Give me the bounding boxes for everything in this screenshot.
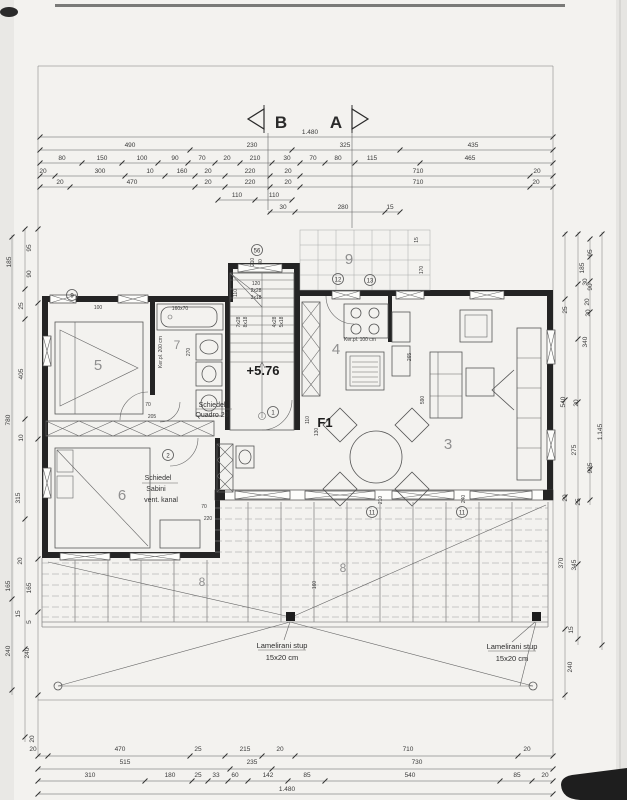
marker: 12 xyxy=(335,278,342,284)
dim: 15 xyxy=(15,610,22,618)
dim: 20 xyxy=(223,155,231,162)
dim: 465 xyxy=(465,155,476,162)
dim: 165 xyxy=(26,582,33,593)
note-sabini-3: vent. kanal xyxy=(144,497,178,504)
dim: 470 xyxy=(115,746,126,753)
dim: 935 xyxy=(587,462,594,473)
dimension-labels-top: 1.480 490 230 325 435 80 150 100 90 70 2… xyxy=(39,129,541,211)
dim: 70 xyxy=(145,402,151,408)
dim: 30 xyxy=(283,155,291,162)
scan-artifacts xyxy=(0,0,627,800)
dim: 20 xyxy=(585,309,592,317)
room-label-8b: 8 xyxy=(340,561,347,575)
dim: 60 xyxy=(231,772,239,779)
floorplan-drawing: 1.480 490 230 325 435 80 150 100 90 70 2… xyxy=(0,0,627,800)
stair-dim: 210 xyxy=(250,258,256,267)
dimension-labels-bottom: 20 470 25 215 20 710 20 515 235 730 310 … xyxy=(29,746,549,793)
dim: 240 xyxy=(5,645,12,656)
dim: 20 xyxy=(573,399,580,407)
dim: 15 xyxy=(568,626,575,634)
section-markers: B A xyxy=(248,105,368,228)
note-sabini-1: Schiedel xyxy=(145,475,172,482)
dim: 515 xyxy=(120,759,131,766)
dim: 265 xyxy=(407,353,413,362)
stove-icon xyxy=(344,304,388,338)
dim: 20 xyxy=(532,179,540,186)
stair-dim: 120 xyxy=(252,281,261,287)
dim: 20 xyxy=(541,772,549,779)
dim: 710 xyxy=(403,746,414,753)
marker: 13 xyxy=(367,279,374,285)
bottom-right-scan-corner xyxy=(561,768,627,800)
dim-overall-bottom: 1.480 xyxy=(279,786,296,793)
coffee-table-icon xyxy=(466,368,494,396)
stair-riser: 4x28 xyxy=(272,316,278,327)
stair-riser: 5x18 xyxy=(279,316,285,327)
dim: 20 xyxy=(204,179,212,186)
annotations: +5.76 F1 Schiedel Quadro 20 Schiedel Sab… xyxy=(142,306,537,663)
dimension-chain-lines xyxy=(10,135,605,797)
dim: 220 xyxy=(245,179,256,186)
dim: 110 xyxy=(232,192,243,199)
section-letter-a: A xyxy=(330,113,342,132)
zone-label: F1 xyxy=(317,415,332,430)
dim: 310 xyxy=(85,772,96,779)
dim: 160 xyxy=(312,581,318,590)
fridge-icon xyxy=(346,352,384,390)
dim: 85 xyxy=(513,772,521,779)
top-left-scan-blob xyxy=(0,7,18,17)
dim: 405 xyxy=(18,368,25,379)
dim: 115 xyxy=(367,155,378,162)
kitchen-cabinet-icon xyxy=(392,312,410,376)
room-label-7: 7 xyxy=(174,338,181,352)
dim: 185 xyxy=(579,262,586,273)
dim: 325 xyxy=(340,142,351,149)
room-label-9: 9 xyxy=(345,251,353,268)
dim: 210 xyxy=(250,155,261,162)
dim: 90 xyxy=(26,270,33,278)
room-label-3: 3 xyxy=(444,436,452,453)
dim: 345 xyxy=(571,559,578,570)
dim: 20 xyxy=(39,168,47,175)
balcony-grid xyxy=(300,230,430,290)
note-column-left-1: Lamelirani stup xyxy=(257,641,308,650)
section-letter-b: B xyxy=(275,113,287,132)
dim: 1.145 xyxy=(597,423,604,440)
dim: 490 xyxy=(125,142,136,149)
dim: 780 xyxy=(5,414,12,425)
level-label: +5.76 xyxy=(247,363,280,378)
note-tub-size: 160x70 xyxy=(172,306,189,312)
stair-dim: 110 xyxy=(233,289,239,297)
dim: 710 xyxy=(413,179,424,186)
dim: 70 xyxy=(198,155,206,162)
shelf-icon xyxy=(517,328,541,480)
stairs: 120 2x28 3x18 7x28 8x18 4x28 5x18 110 21… xyxy=(230,258,294,430)
dim: 15 xyxy=(386,204,394,211)
room-label-5: 5 xyxy=(94,357,102,374)
room-label-4: 4 xyxy=(332,341,340,358)
dim: 20 xyxy=(284,168,292,175)
scanned-floorplan-page: 1.480 490 230 325 435 80 150 100 90 70 2… xyxy=(0,0,627,800)
dim: 30 xyxy=(279,204,287,211)
dim: 25 xyxy=(575,498,582,506)
sofa-icon xyxy=(430,352,462,418)
dim: 25 xyxy=(562,306,569,314)
dim: 5 xyxy=(26,620,33,624)
stair-riser: 7x28 xyxy=(236,316,242,327)
note-column-left-2: 15x20 cm xyxy=(266,653,299,662)
column-right xyxy=(532,612,541,621)
dim: 275 xyxy=(571,444,578,455)
section-arrow-right-icon xyxy=(352,109,368,129)
dim: 20 xyxy=(284,179,292,186)
dim: 33 xyxy=(212,772,220,779)
marker: 11 xyxy=(369,511,376,517)
dim: 20 xyxy=(204,168,212,175)
marker: 56 xyxy=(254,249,261,255)
dim: 300 xyxy=(95,168,106,175)
dim: 110 xyxy=(269,192,280,199)
dim: 90 xyxy=(587,283,594,291)
dim: 20 xyxy=(29,746,37,753)
column-center xyxy=(286,612,295,621)
dim: 80 xyxy=(334,155,342,162)
dim: 20 xyxy=(562,494,569,502)
marker: 1 xyxy=(271,411,275,417)
dim: 270 xyxy=(186,348,192,357)
marker: 11 xyxy=(459,511,466,517)
dim: 240 xyxy=(461,495,467,504)
dim: 95 xyxy=(587,249,594,257)
dim: 340 xyxy=(582,336,589,347)
note-column-right-1: Lamelirani stup xyxy=(487,642,538,651)
shafts xyxy=(46,302,320,492)
braces-and-columns xyxy=(48,505,546,690)
dim: 25 xyxy=(194,772,202,779)
wc-sink-icon xyxy=(236,446,254,468)
dim: 435 xyxy=(468,142,479,149)
tv-icon xyxy=(492,370,514,410)
room-label-6: 6 xyxy=(118,487,126,504)
dim: 85 xyxy=(303,772,311,779)
dim: 90 xyxy=(171,155,179,162)
dim: 470 xyxy=(127,179,138,186)
walls xyxy=(42,263,553,558)
dim: 110 xyxy=(305,416,311,424)
dim: 205 xyxy=(148,414,157,420)
section-arrow-left-icon xyxy=(248,109,264,129)
dim: 240 xyxy=(24,647,31,658)
dim: 215 xyxy=(240,746,251,753)
dim: 10 xyxy=(18,434,25,442)
dim: 95 xyxy=(26,244,33,252)
dim: 20 xyxy=(56,179,64,186)
marker: 2 xyxy=(166,454,170,460)
vent-shaft-kitchen xyxy=(302,302,320,396)
dim: 10 xyxy=(146,168,154,175)
bathtub-icon xyxy=(157,304,223,330)
deck-boards xyxy=(42,502,548,627)
dim: 540 xyxy=(405,772,416,779)
dim: 25 xyxy=(18,302,25,310)
dim: 142 xyxy=(263,772,274,779)
dim: 710 xyxy=(413,168,424,175)
note-ker-bath: Ker.pl. 200 cm xyxy=(158,336,164,368)
dim: 130 xyxy=(314,428,320,437)
dim: 220 xyxy=(204,516,213,522)
dim-overall-top: 1.480 xyxy=(302,129,319,136)
dim: 70 xyxy=(309,155,317,162)
note-schiedel-1: Schiedel xyxy=(199,402,226,409)
dim: 170 xyxy=(419,266,425,275)
stair-dim: 80 xyxy=(258,259,264,265)
dim: 730 xyxy=(412,759,423,766)
sink-icon xyxy=(196,334,222,360)
note-ker-kitchen: Ker.pl. 100 cm xyxy=(344,337,376,343)
dim: 165 xyxy=(5,580,12,591)
dim: 20 xyxy=(584,298,591,306)
top-scan-line xyxy=(55,4,565,7)
dim: 230 xyxy=(247,142,258,149)
dim: 590 xyxy=(420,396,426,405)
dim: 540 xyxy=(560,396,567,407)
dim: 20 xyxy=(523,746,531,753)
dim-ticks xyxy=(10,135,605,797)
dim: 150 xyxy=(97,155,108,162)
dim: 20 xyxy=(276,746,284,753)
dim: 370 xyxy=(558,557,565,568)
wardrobe-strip xyxy=(46,421,214,436)
dim: 235 xyxy=(247,759,258,766)
dim: 240 xyxy=(567,661,574,672)
dim: 100 xyxy=(137,155,148,162)
dim: 20 xyxy=(533,168,541,175)
dim: 100 xyxy=(94,305,103,311)
dim: 315 xyxy=(15,492,22,503)
dim: 220 xyxy=(245,168,256,175)
room-label-8a: 8 xyxy=(199,575,206,589)
dim: 80 xyxy=(58,155,66,162)
dim: 70 xyxy=(201,504,207,510)
double-bed-icon xyxy=(55,448,200,548)
toilet-icon xyxy=(196,362,222,386)
note-schiedel-2: Quadro 20 xyxy=(195,412,228,419)
dim: 20 xyxy=(17,557,24,565)
dim: 185 xyxy=(6,256,13,267)
dim: 25 xyxy=(194,746,202,753)
note-sabini-2: Sabini xyxy=(146,486,166,493)
dim: 160 xyxy=(177,168,188,175)
section-marker-a: A xyxy=(330,105,368,228)
dim: 280 xyxy=(338,204,349,211)
stair-riser: 8x18 xyxy=(243,316,249,327)
armchair-icon xyxy=(460,310,492,342)
note-column-right-2: 15x20 cm xyxy=(496,654,529,663)
dim: 180 xyxy=(165,772,176,779)
dim: 15 xyxy=(414,237,420,243)
dim: 20 xyxy=(29,735,36,743)
stair-riser: 3x18 xyxy=(251,295,262,301)
stair-riser: 2x28 xyxy=(251,288,262,294)
dim: 210 xyxy=(378,496,384,505)
right-edge-shading xyxy=(616,0,627,800)
